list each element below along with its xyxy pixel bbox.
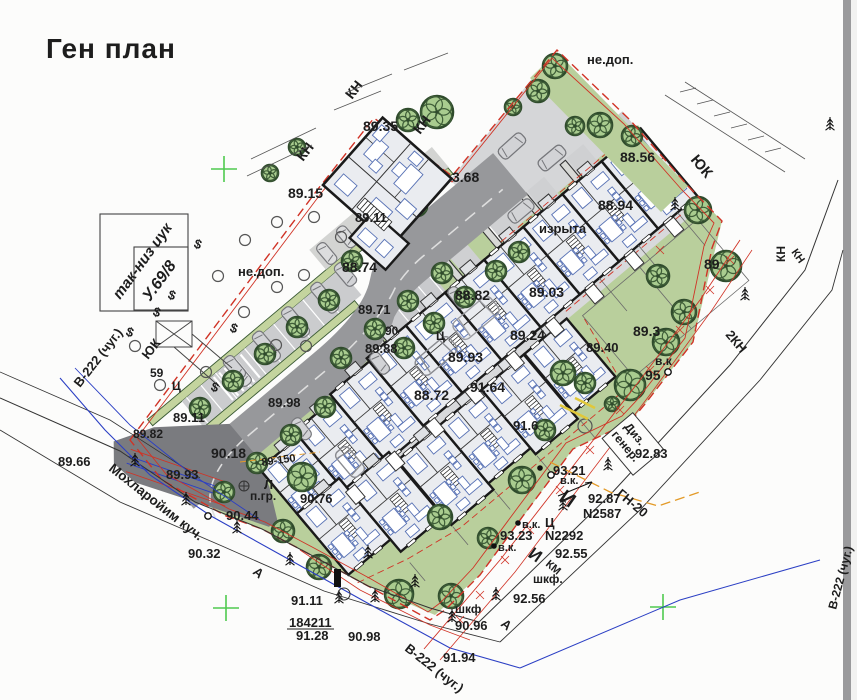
svg-text:92.56: 92.56	[513, 591, 546, 606]
svg-text:в.к.: в.к.	[498, 542, 516, 554]
svg-text:90.76: 90.76	[300, 491, 333, 506]
svg-text:Ц: Ц	[436, 329, 445, 343]
svg-text:88.72: 88.72	[414, 387, 449, 403]
svg-text:Ц: Ц	[172, 379, 181, 393]
svg-text:в.к.: в.к.	[522, 519, 540, 531]
svg-text:не.доп.: не.доп.	[238, 264, 284, 279]
svg-text:3.68: 3.68	[452, 169, 479, 185]
svg-text:89.15: 89.15	[288, 185, 323, 201]
svg-text:Ц: Ц	[545, 515, 555, 530]
svg-text:92.83: 92.83	[635, 446, 668, 461]
svg-text:в.к: в.к	[655, 354, 673, 368]
svg-text:91.11: 91.11	[291, 593, 323, 608]
svg-text:изрыта: изрыта	[539, 221, 587, 236]
svg-text:N2587: N2587	[583, 506, 621, 521]
svg-text:89.24: 89.24	[510, 327, 545, 343]
svg-text:91.28: 91.28	[296, 628, 329, 643]
svg-text:92.55: 92.55	[555, 546, 588, 561]
svg-text:89.3: 89.3	[633, 323, 660, 339]
svg-text:89.93: 89.93	[448, 349, 483, 365]
svg-text:90.32: 90.32	[188, 546, 221, 561]
svg-text:89.93: 89.93	[166, 467, 199, 482]
svg-text:шкф.: шкф.	[533, 572, 563, 586]
svg-text:90.96: 90.96	[455, 618, 488, 633]
svg-text:КН: КН	[774, 246, 788, 262]
svg-text:не.доп.: не.доп.	[587, 52, 633, 67]
svg-text:88.82: 88.82	[455, 287, 490, 303]
svg-text:91.6: 91.6	[513, 418, 538, 433]
svg-text:89.88: 89.88	[365, 341, 398, 356]
svg-text:88.56: 88.56	[620, 149, 655, 165]
svg-text:в.к.: в.к.	[560, 475, 578, 487]
svg-text:59: 59	[150, 366, 164, 380]
svg-text:89.11: 89.11	[173, 410, 205, 425]
svg-text:89.11: 89.11	[355, 210, 387, 225]
svg-text:88.74: 88.74	[342, 259, 377, 275]
svg-text:90: 90	[385, 324, 399, 338]
svg-text:89.03: 89.03	[529, 284, 564, 300]
svg-text:95: 95	[645, 367, 661, 383]
svg-text:90.18: 90.18	[211, 445, 246, 461]
svg-text:шкф: шкф	[455, 602, 482, 616]
svg-text:90.98: 90.98	[348, 629, 381, 644]
svg-text:91.94: 91.94	[443, 650, 476, 665]
svg-text:89.82: 89.82	[133, 427, 163, 441]
svg-text:89: 89	[704, 256, 720, 272]
svg-text:91.64: 91.64	[470, 379, 505, 395]
svg-text:90.44: 90.44	[226, 508, 259, 523]
svg-text:89.66: 89.66	[58, 454, 91, 469]
svg-text:89.98: 89.98	[268, 395, 301, 410]
svg-text:Ген план: Ген план	[46, 33, 176, 64]
svg-text:88.94: 88.94	[598, 197, 633, 213]
svg-text:N2292: N2292	[545, 528, 583, 543]
svg-text:89.40: 89.40	[586, 340, 619, 355]
svg-text:п.гр.: п.гр.	[250, 489, 276, 503]
svg-text:89.71: 89.71	[358, 302, 391, 317]
svg-text:89.35: 89.35	[363, 118, 398, 134]
